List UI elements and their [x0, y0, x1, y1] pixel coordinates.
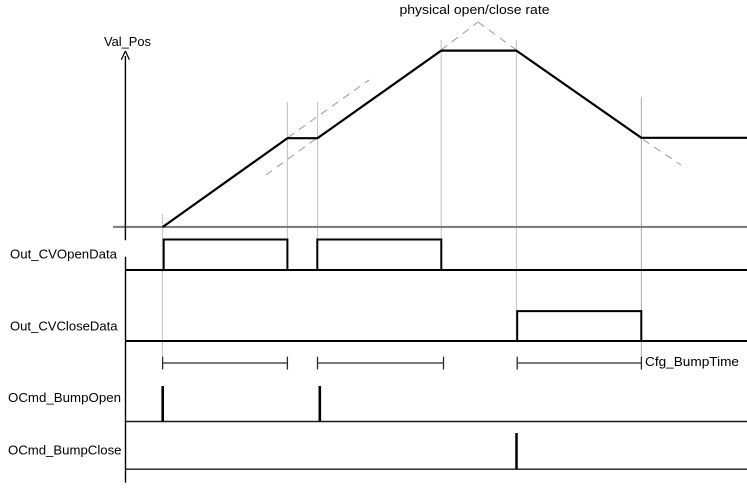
svg-text:Val_Pos: Val_Pos [104, 34, 151, 49]
svg-text:OCmd_BumpClose: OCmd_BumpClose [8, 443, 121, 458]
svg-text:Out_CVOpenData: Out_CVOpenData [10, 247, 118, 262]
svg-text:OCmd_BumpOpen: OCmd_BumpOpen [8, 390, 121, 405]
svg-text:Out_CVCloseData: Out_CVCloseData [10, 319, 118, 334]
svg-text:physical open/close rate: physical open/close rate [400, 2, 550, 17]
svg-text:Cfg_BumpTime: Cfg_BumpTime [645, 354, 739, 369]
